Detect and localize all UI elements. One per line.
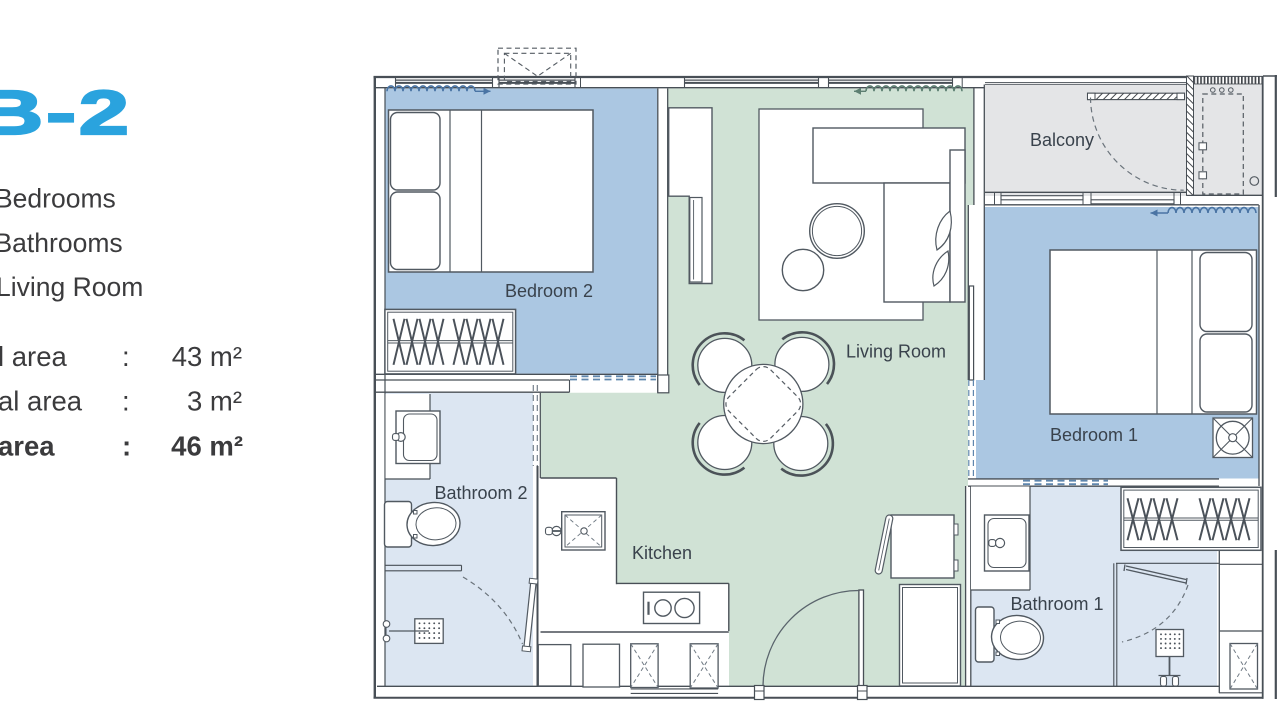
svg-text:3 m²: 3 m² [187, 386, 242, 417]
svg-text:46 m²: 46 m² [171, 431, 243, 462]
svg-text:area: area [0, 431, 55, 462]
svg-text::: : [122, 341, 130, 372]
svg-text:Bathrooms: Bathrooms [0, 228, 123, 258]
svg-text:Bathroom 2: Bathroom 2 [434, 483, 527, 503]
svg-text:Living Room: Living Room [0, 272, 143, 302]
svg-text::: : [122, 431, 131, 462]
svg-text:Bathroom 1: Bathroom 1 [1010, 594, 1103, 614]
svg-text:B-2: B-2 [0, 79, 132, 148]
svg-text:Bedroom 2: Bedroom 2 [505, 281, 593, 301]
svg-text:43 m²: 43 m² [172, 341, 242, 372]
svg-text:Bedroom 1: Bedroom 1 [1050, 425, 1138, 445]
svg-text::: : [122, 386, 130, 417]
svg-text:al area: al area [0, 386, 83, 417]
svg-text:Living Room: Living Room [846, 342, 946, 362]
svg-text:l area: l area [0, 341, 67, 372]
svg-text:Kitchen: Kitchen [632, 543, 692, 563]
svg-text:Balcony: Balcony [1030, 130, 1094, 150]
svg-text:Bedrooms: Bedrooms [0, 184, 116, 214]
